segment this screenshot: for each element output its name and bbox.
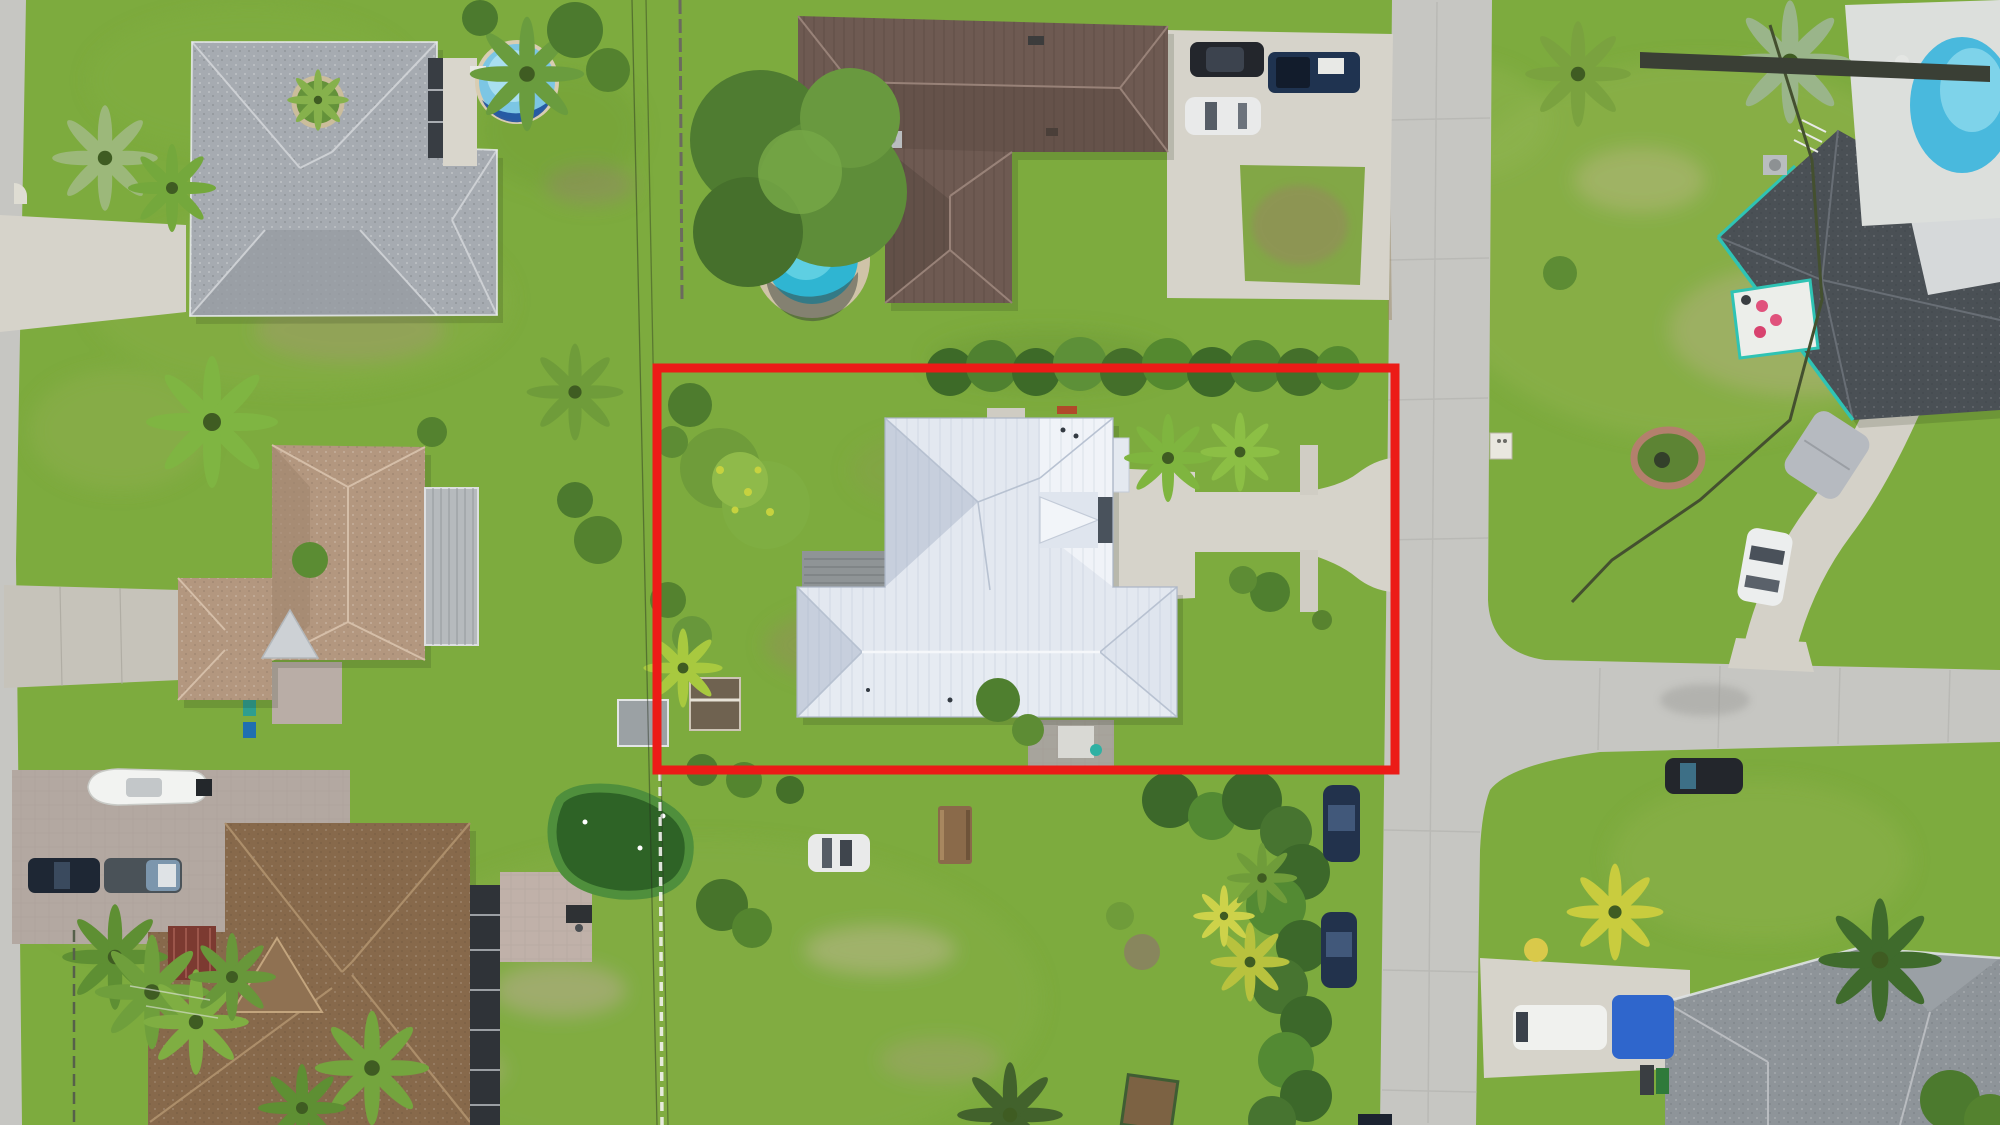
wood-deck	[802, 551, 887, 587]
palm-west	[527, 344, 624, 441]
road-stain	[1660, 684, 1750, 716]
pool-top-right	[1845, 0, 2000, 226]
walk-stub-south	[1300, 550, 1318, 612]
aerial-photo-canvas	[0, 0, 2000, 1125]
sedan-navy-roadside-2	[1321, 912, 1357, 988]
pickup-navy-parking	[1268, 52, 1360, 93]
car-bottom-edge	[1358, 1114, 1392, 1125]
pickup-dark-bl	[28, 858, 100, 893]
lanai-screen-top-left	[428, 58, 444, 158]
utility-box	[1490, 433, 1512, 459]
trash-bin-green	[1656, 1068, 1669, 1094]
royal-palm	[146, 356, 278, 488]
palm-empty-lot	[1525, 21, 1631, 127]
firepit-circle	[1634, 430, 1702, 486]
car-white-field	[808, 834, 870, 872]
dirt-patch	[1252, 185, 1348, 265]
van-white	[1513, 1005, 1607, 1050]
suv-dark-parking	[1190, 42, 1264, 77]
palm-driveway-2	[1200, 412, 1279, 491]
tarp-white	[1058, 726, 1094, 758]
roof-vent	[1046, 128, 1058, 136]
utility-trailer	[1121, 1075, 1177, 1125]
cooler-teal	[1090, 744, 1102, 756]
lanai-screen-bottom-left	[470, 885, 500, 1125]
outboard-motor	[196, 779, 212, 796]
bench-orange	[1057, 406, 1077, 414]
walk-stub-north	[1300, 445, 1318, 495]
skylight	[1028, 36, 1044, 45]
sedan-navy-roadside-1	[1323, 785, 1360, 862]
boat	[88, 769, 212, 805]
pickup-blue-bl	[104, 858, 182, 893]
suv-dark-corner	[1665, 758, 1743, 794]
gable-jut	[1113, 438, 1129, 492]
pool-deck-chairs	[1732, 280, 1818, 358]
flower-bush-yellow	[1524, 938, 1548, 962]
bin-blue	[243, 722, 256, 738]
patio-mid-left	[272, 662, 342, 724]
sedan-white-parking	[1185, 97, 1261, 135]
palm-over-roof-br	[1818, 898, 1941, 1021]
palm-driveway-1	[1124, 414, 1212, 502]
driveway-top-left	[0, 215, 186, 332]
metal-awning	[425, 488, 478, 645]
driveway-mid-left	[4, 585, 180, 688]
driveway-top-right-apron	[1728, 638, 1814, 672]
palm-yellow	[1567, 864, 1664, 961]
dead-bush	[1124, 934, 1160, 970]
blue-tarp	[1612, 995, 1674, 1059]
subject-driveway-neck	[1193, 492, 1305, 552]
trash-bin	[1640, 1065, 1654, 1095]
picnic-table	[938, 806, 972, 864]
aerial-photo	[0, 0, 2000, 1125]
entry-porch-shadow	[1098, 497, 1113, 543]
